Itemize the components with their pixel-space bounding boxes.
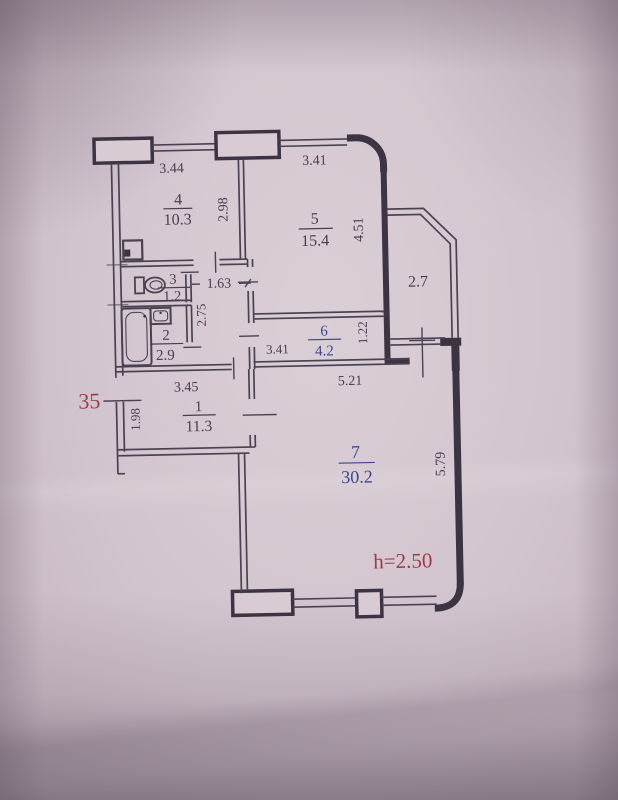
plan-group: 3.44 3.41 2.98 4.51 1.63 2.75 3.41 1.22 … [73, 128, 467, 623]
window-glass-line [382, 604, 437, 605]
room-2-area: 2.9 [156, 348, 175, 364]
dim-room5-depth: 4.51 [352, 217, 368, 242]
room7-door-tick [243, 414, 277, 415]
window-pier [356, 590, 382, 617]
room-6-number: 6 [320, 323, 328, 339]
wall-hall-room7 [249, 369, 250, 399]
room7-top-wall [254, 364, 410, 367]
window-glass-line [279, 145, 347, 146]
dim-room4-depth: 2.98 [216, 197, 232, 222]
window-glass-line [279, 139, 347, 140]
balcony-floor-line [390, 344, 440, 345]
window-pier [216, 131, 280, 158]
room-1-number: 1 [195, 399, 203, 415]
room-4-number: 4 [174, 191, 182, 208]
corridor-right-wall [248, 291, 249, 323]
wall-step [455, 342, 456, 371]
ceiling-height-label: h=2.50 [373, 548, 433, 573]
left-wall [116, 402, 118, 474]
toilet-icon [135, 277, 144, 293]
wall-hall-room7 [254, 369, 255, 399]
room-7-number: 7 [351, 442, 360, 462]
dim-room6-width: 3.41 [266, 341, 289, 356]
window-glass-line [152, 144, 216, 145]
dim-room7-right-depth: 5.79 [434, 452, 450, 477]
room-7-fraction-bar [339, 462, 375, 463]
window-pier [94, 138, 152, 163]
bath-right-wall [186, 305, 187, 342]
room-2-number: 2 [162, 328, 170, 344]
left-wall [111, 163, 116, 378]
dim-entry-wall: 1.98 [128, 408, 143, 431]
room7-left-wall [239, 453, 242, 593]
window-glass-line [293, 598, 357, 599]
room-3-number: 3 [169, 272, 177, 288]
floor-plan-photo: 3.44 3.41 2.98 4.51 1.63 2.75 3.41 1.22 … [0, 0, 618, 800]
right-wall [384, 168, 388, 361]
wc-right-wall [191, 274, 192, 302]
wall-room4-south [220, 264, 248, 265]
room-3-area: 1.2 [163, 288, 181, 304]
dim-top-wall-right: 3.41 [302, 153, 327, 169]
balcony-door-symbol [422, 327, 423, 377]
balcony-floor-line [390, 338, 445, 339]
window-glass-line [152, 150, 216, 151]
room-2-fraction-bar [150, 343, 183, 344]
room-6-area: 4.2 [315, 343, 334, 359]
room-4-fraction-bar [163, 208, 192, 209]
room-5-area: 15.4 [301, 232, 329, 250]
vent-shaft-mark [124, 250, 130, 257]
room-1-fraction-bar [183, 415, 216, 416]
room-1-area: 11.3 [185, 418, 212, 436]
room-5-number: 5 [310, 211, 318, 228]
hall-bottom-wall [118, 453, 250, 456]
floor-plan-drawing: 3.44 3.41 2.98 4.51 1.63 2.75 3.41 1.22 … [0, 0, 618, 800]
room-7-area: 30.2 [341, 466, 373, 487]
window-glass-line [382, 596, 437, 597]
wall-room5-room6 [254, 316, 385, 319]
entrance-door-tick [103, 400, 141, 401]
balcony-door-tick [409, 340, 435, 341]
dim-room7-top-width: 5.21 [338, 374, 363, 390]
room7-right-wall [456, 367, 461, 585]
dim-wc-hall-width: 1.63 [207, 276, 232, 292]
bath-right-wall [191, 305, 192, 342]
wall-room5-room6 [254, 311, 385, 314]
room-5-fraction-bar [299, 228, 333, 229]
dim-top-wall-left: 3.44 [159, 161, 184, 177]
rounded-corner-bottom-right [434, 583, 461, 609]
hall-bottom-wall [117, 447, 255, 450]
hall-top-wall [116, 369, 232, 371]
apartment-number-label: 35 [78, 388, 101, 413]
left-wall [123, 402, 124, 452]
dim-hall-width: 3.45 [174, 380, 199, 396]
dim-room6-depth: 1.22 [355, 321, 370, 344]
wc-right-wall [186, 274, 187, 302]
rounded-corner-top-right [347, 137, 384, 173]
wall-room4-south [121, 265, 194, 267]
wall-room4-south [219, 259, 247, 260]
wall-room4-room5 [243, 159, 245, 259]
window-pier [232, 590, 292, 615]
room-4-area: 10.3 [163, 211, 191, 229]
wall-step [385, 361, 410, 362]
balcony-area-label: 2.7 [408, 273, 428, 290]
wall-room4-room5 [238, 159, 240, 259]
dim-wc-hall-depth: 2.75 [193, 304, 208, 327]
bathtub-icon [126, 312, 148, 361]
room7-left-wall [245, 453, 248, 591]
window-glass-line [293, 606, 357, 607]
sink-drain [159, 312, 161, 314]
room-6-fraction-bar [308, 339, 341, 340]
wall-wc-bath [121, 305, 191, 306]
